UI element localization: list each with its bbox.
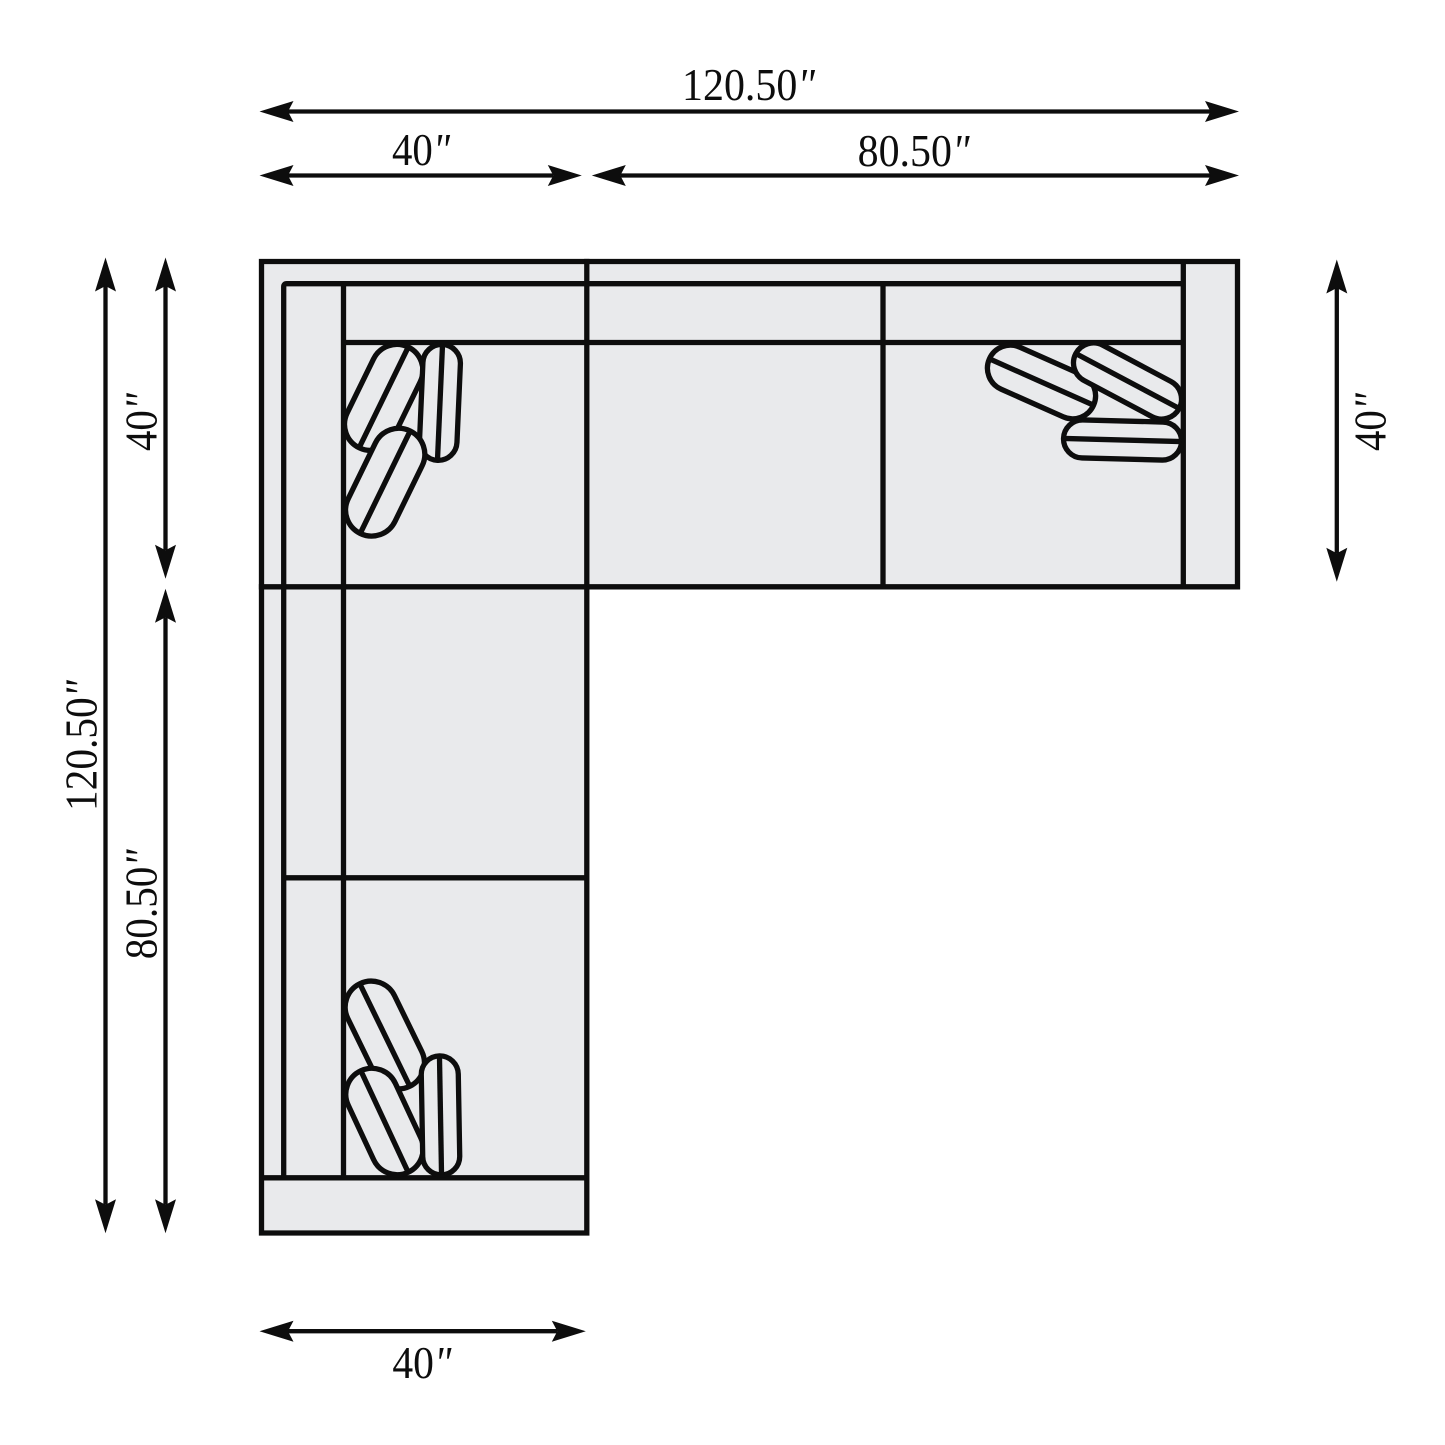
svg-text:120.50": 120.50" [56,679,107,811]
svg-text:120.50": 120.50" [682,59,816,110]
svg-text:80.50": 80.50" [116,849,167,960]
svg-text:40": 40" [392,124,451,175]
svg-text:80.50": 80.50" [858,125,971,176]
svg-text:40": 40" [116,392,167,451]
svg-text:40": 40" [392,1337,452,1388]
svg-text:40": 40" [1344,392,1395,451]
